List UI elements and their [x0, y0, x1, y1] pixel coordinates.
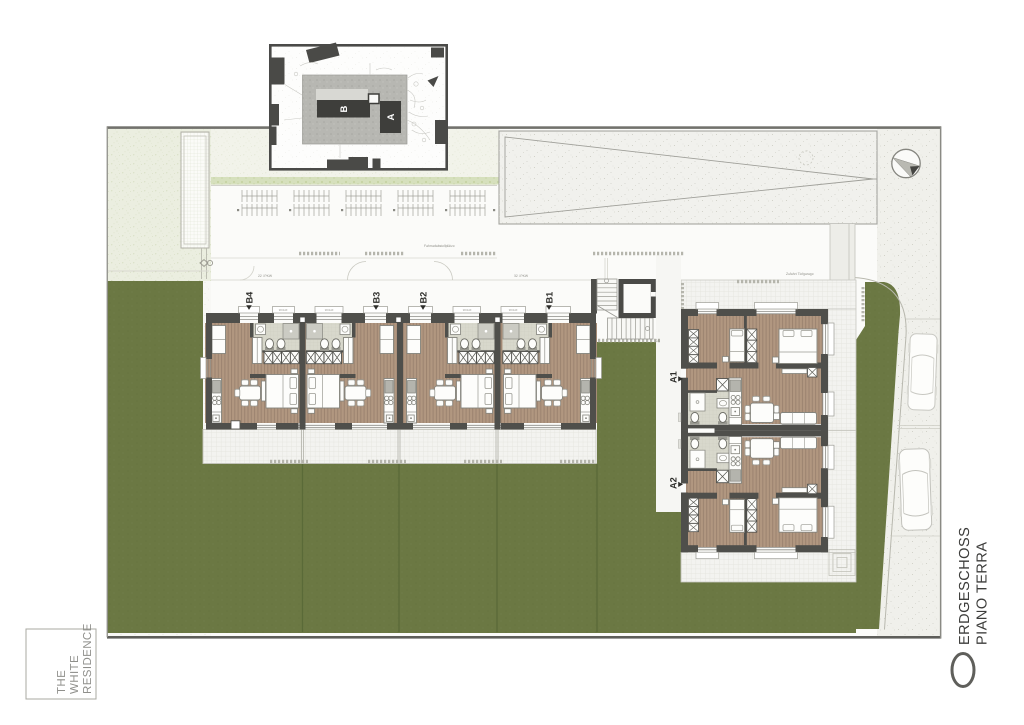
svg-text:THE: THE [56, 670, 68, 694]
svg-text:B3: B3 [372, 292, 382, 304]
svg-text:RESIDENCE: RESIDENCE [82, 623, 94, 694]
svg-text:PIANO TERRA: PIANO TERRA [975, 541, 991, 645]
svg-text:B: B [339, 106, 350, 113]
svg-text:ERDGESCHOSS: ERDGESCHOSS [957, 527, 973, 645]
svg-text:90/240: 90/240 [509, 308, 518, 312]
svg-text:90/240: 90/240 [325, 308, 334, 312]
svg-text:B2: B2 [419, 292, 429, 304]
svg-text:32 i PKW: 32 i PKW [514, 274, 529, 278]
svg-text:A1: A1 [669, 371, 679, 383]
svg-text:GS: GS [655, 339, 661, 343]
svg-text:Zufahrt Tiefgarage: Zufahrt Tiefgarage [786, 272, 814, 276]
svg-text:B1: B1 [545, 292, 555, 304]
svg-text:Fahrradabstellplätze: Fahrradabstellplätze [424, 244, 455, 248]
svg-text:90/240: 90/240 [279, 308, 288, 312]
svg-text:22 i PKW: 22 i PKW [258, 274, 273, 278]
svg-text:A2: A2 [669, 477, 679, 489]
svg-text:B4: B4 [245, 291, 255, 304]
svg-text:WHITE: WHITE [69, 655, 81, 694]
svg-text:A: A [386, 114, 397, 121]
svg-text:90/240: 90/240 [463, 308, 472, 312]
